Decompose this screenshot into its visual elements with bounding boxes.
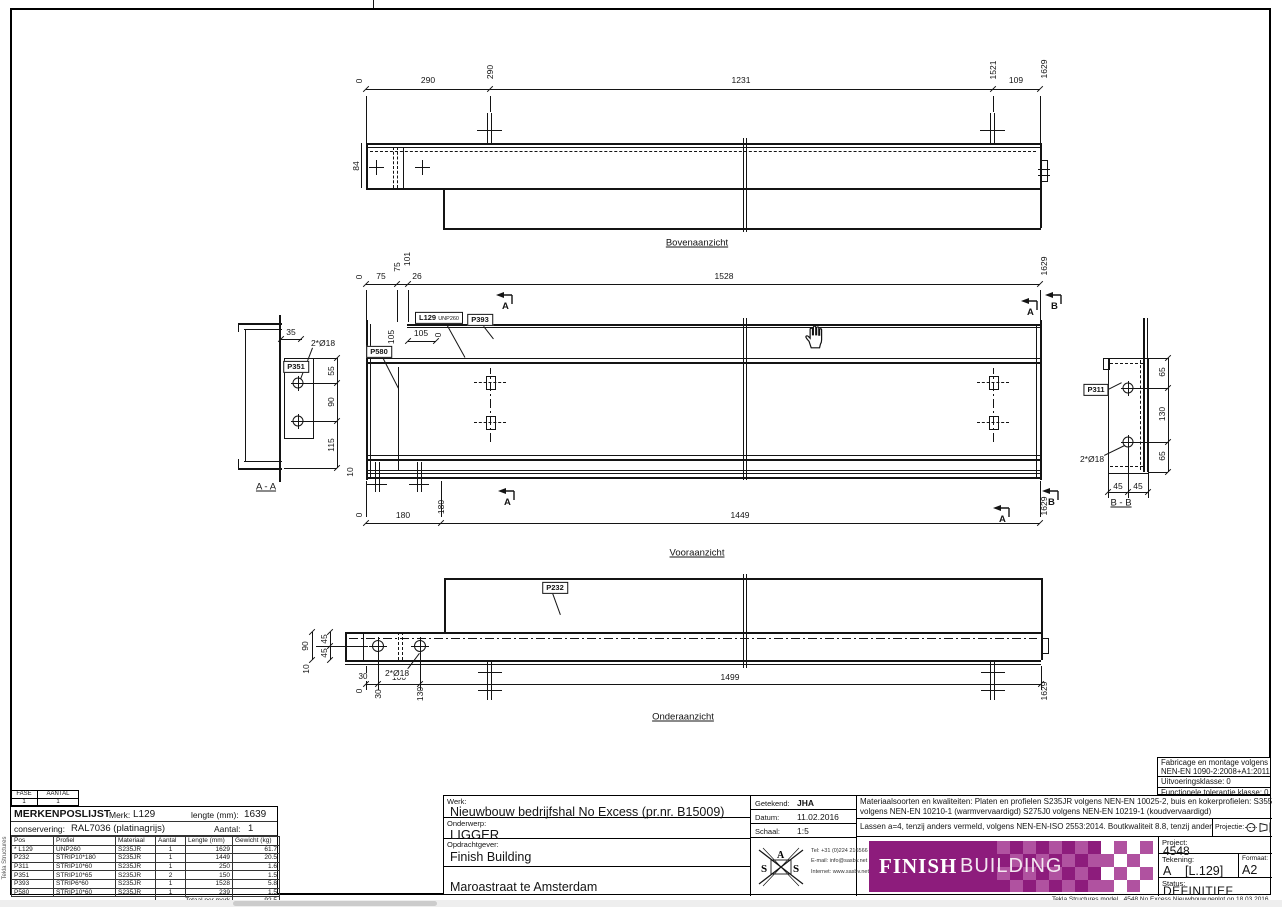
sheet-border (10, 8, 1271, 895)
dim-label: 45 (1133, 482, 1142, 491)
col-header: Gewicht (kg) (233, 837, 280, 846)
dim-label: 45 (320, 634, 329, 643)
dim-label: 90 (301, 641, 310, 650)
svg-text:A: A (777, 850, 785, 861)
opdrachtgever-cell: Opdrachtgever: Finish Building (444, 839, 751, 867)
part-label-P393: P393 (467, 314, 493, 326)
part-label-P351: P351 (283, 361, 309, 373)
fold-mark (373, 0, 374, 8)
dim-label: 45 (320, 648, 329, 657)
bolt-symbol (417, 462, 418, 492)
drawing-sheet: Tekla Structures 0 290 290 1231 1521 109… (0, 0, 1282, 907)
opdrachtgever-value: Finish Building (444, 849, 750, 864)
dim-line (366, 684, 1041, 685)
werk-value: Nieuwbouw bedrijfshal No Excess (pr.nr. … (444, 804, 750, 819)
dim-label: 180 (437, 500, 446, 514)
section-marker-A: A (497, 487, 519, 511)
projectie-cell: Projectie: (1213, 819, 1272, 837)
dim-line (366, 523, 1040, 524)
weld-line (398, 367, 399, 470)
section-marker-B: B (1041, 487, 1063, 511)
beam-edge (407, 324, 1040, 326)
locatie-value: Maroastraat te Amsterdam (444, 879, 750, 894)
tekening-rev: A (1163, 864, 1171, 878)
dim-label: 109 (1009, 76, 1023, 85)
horizontal-scrollbar[interactable] (0, 900, 1282, 907)
dim-line (337, 358, 338, 468)
conservering-label: conservering: (14, 824, 65, 834)
aantal-label: AANTAL (38, 791, 78, 799)
dim-line (366, 284, 1040, 285)
aantal2-value: 1 (248, 823, 253, 834)
dim-label: 30 (374, 689, 383, 698)
dim-label: 1449 (731, 511, 750, 520)
view-title: B - B (1110, 498, 1131, 509)
parts-table: MERKENPOSLIJST Merk: L129 lengte (mm): 1… (10, 806, 278, 895)
dim-label: 84 (352, 161, 361, 170)
dim-label: 0 (434, 333, 443, 338)
view-title: Bovenaanzicht (666, 238, 728, 249)
dim-label: 75 (376, 272, 385, 281)
break-line (743, 318, 744, 480)
dim-label: 1629 (1040, 682, 1049, 701)
dim-label: 1231 (732, 76, 751, 85)
dim-label: 105 (414, 329, 428, 338)
fase-label: FASE (11, 791, 38, 799)
dim-label: 290 (486, 65, 495, 79)
dim-label: 0 (355, 275, 364, 280)
parts-title: MERKENPOSLIJST (14, 808, 110, 820)
col-header: Materiaal (116, 837, 156, 846)
dim-line (366, 89, 1040, 90)
dim-label: 2*Ø18 (1080, 455, 1104, 464)
sas-logo: S A S (755, 844, 807, 890)
dim-label: 10 (346, 467, 355, 476)
hand-cursor (802, 324, 828, 355)
dim-line (1168, 358, 1169, 472)
part-label-P580: P580 (366, 346, 392, 358)
getekend-value: JHA (797, 798, 814, 808)
formaat-cell: Formaat: A2 (1239, 854, 1272, 878)
bolt-symbol (487, 113, 488, 145)
dim-label: 0 (355, 513, 364, 518)
bolt-symbol (487, 662, 488, 700)
svg-text:S: S (793, 863, 799, 875)
dim-label: 35 (286, 328, 295, 337)
dim-label: 65 (1158, 451, 1167, 460)
schaal-cell: Schaal: 1:5 (751, 824, 857, 838)
conservering-value: RAL7036 (platinagrijs) (71, 823, 165, 834)
opdrachtgever-label: Opdrachtgever: (444, 839, 750, 849)
dim-label: 1528 (715, 272, 734, 281)
section-marker-A: A (1020, 297, 1042, 321)
bolt-symbol (990, 662, 991, 700)
formaat-value: A2 (1242, 863, 1257, 877)
dim-label: 2*Ø18 (311, 339, 335, 348)
merk-label: Merk: (109, 810, 130, 820)
bolt-symbol (375, 462, 376, 492)
dim-label: 10 (302, 664, 311, 673)
lassen-cell: Lassen a=4, tenzij anders vermeld, volge… (857, 819, 1213, 837)
datum-cell: Datum: 11.02.2016 (751, 810, 857, 824)
dim-label: 45 (1113, 482, 1122, 491)
dim-label: 1629 (1040, 60, 1049, 79)
dim-label: 1629 (1040, 257, 1049, 276)
locatie-cell: Maroastraat te Amsterdam (444, 867, 751, 896)
dim-label: 30 (359, 673, 368, 681)
section-marker-A: A (992, 504, 1014, 528)
tekening-cell: Tekening: A [L.129] (1158, 854, 1239, 878)
col-header: Lengte (mm) (186, 837, 233, 846)
edge-vertical-text: Tekla Structures (2, 836, 8, 879)
fase-table: FASE AANTAL 1 1 (10, 790, 79, 806)
materials-line2: volgens NEN-EN 10210-1 (warmvervaardigd)… (857, 806, 1272, 816)
section-marker-B: B (1044, 291, 1066, 315)
getekend-cell: Getekend: JHA (751, 796, 857, 810)
view-title: Vooraanzicht (670, 548, 725, 559)
svg-text:S: S (761, 863, 767, 875)
dim-label: 0 (355, 689, 364, 694)
materials-line1: Materiaalsoorten en kwaliteiten: Platen … (857, 796, 1272, 806)
lengte-value: 1639 (244, 809, 266, 820)
bolt-symbol (990, 113, 991, 145)
dim-label: 180 (396, 511, 410, 520)
fase-value: 1 (11, 799, 38, 806)
dim-label: 26 (412, 272, 421, 281)
table-row: P232STRIP10*180S235JR1144920.5 (12, 854, 280, 863)
dim-label: 290 (421, 76, 435, 85)
dim-label: 130 (1158, 407, 1167, 421)
table-row: P393STRIP6*60S235JR115285.8 (12, 879, 280, 888)
status-cell: Status: DEFINITIEF (1158, 878, 1272, 896)
fabricage-box: Fabricage en montage volgens NEN-EN 1090… (1157, 757, 1271, 795)
dim-label: 1499 (721, 673, 740, 682)
col-header: Aantal (156, 837, 186, 846)
werk-cell: Werk: Nieuwbouw bedrijfshal No Excess (p… (444, 796, 751, 818)
dim-label: 1521 (989, 61, 998, 80)
dim-label: 55 (327, 366, 336, 375)
datum-value: 11.02.2016 (797, 812, 839, 822)
dim-label: 75 (393, 262, 402, 271)
projection-symbol-icon (1245, 821, 1271, 834)
part-label-P311: P311 (1083, 384, 1108, 396)
dim-label: 90 (327, 397, 336, 406)
view-title: A - A (256, 482, 276, 493)
dim-label: 2*Ø18 (385, 669, 409, 678)
parts-grid: Pos Profiel Materiaal Aantal Lengte (mm)… (11, 836, 280, 906)
col-header: Profiel (54, 837, 116, 846)
merk-value: L129 (133, 809, 155, 820)
dim-label: 0 (355, 79, 364, 84)
brand-building: BUILDING (960, 855, 1062, 878)
finish-building-logo: FINISH BUILDING (857, 837, 1158, 896)
table-row: P580STRIP10*60S235JR12391.5 (12, 888, 280, 897)
aantal-value: 1 (38, 799, 78, 806)
dim-label: 130 (416, 687, 425, 701)
materials-line3: Lassen a=4, tenzij anders vermeld, volge… (857, 819, 1212, 831)
table-row: P351STRIP10*65S235JR21501.5 (12, 871, 280, 880)
dim-label: 115 (327, 438, 336, 452)
scrollbar-thumb[interactable] (233, 901, 437, 906)
brand-finish: FINISH (879, 854, 957, 879)
beam-edge (366, 143, 1040, 145)
project-cell: Project: 4548 (1158, 837, 1272, 854)
sas-logo-cell: S A S Tel: +31 (0)224 216566 E-mail: inf… (751, 838, 857, 896)
part-label-P232: P232 (542, 582, 568, 594)
materials-cell: Materiaalsoorten en kwaliteiten: Platen … (857, 796, 1272, 819)
title-block: Werk: Nieuwbouw bedrijfshal No Excess (p… (443, 795, 1271, 895)
dim-label: 65 (1158, 367, 1167, 376)
aantal2-label: Aantal: (214, 824, 240, 834)
break-line (743, 574, 744, 668)
schaal-value: 1:5 (797, 826, 809, 836)
table-row: P311STRIP10*60S235JR12501.6 (12, 862, 280, 871)
section-marker-A: A (495, 291, 517, 315)
table-row: * L129UNP260S235JR1162961.7 (12, 845, 280, 854)
lengte-label: lengte (mm): (191, 810, 239, 820)
tekening-mark: [L.129] (1185, 864, 1223, 878)
view-title: Onderaanzicht (652, 712, 714, 723)
part-label-L129: L129 UNP260 (415, 312, 463, 324)
dim-label: 101 (403, 252, 412, 266)
onderwerp-cell: Onderwerp: LIGGER (444, 818, 751, 839)
break-line (743, 138, 744, 232)
col-header: Pos (12, 837, 54, 846)
dim-label: 105 (387, 330, 396, 344)
